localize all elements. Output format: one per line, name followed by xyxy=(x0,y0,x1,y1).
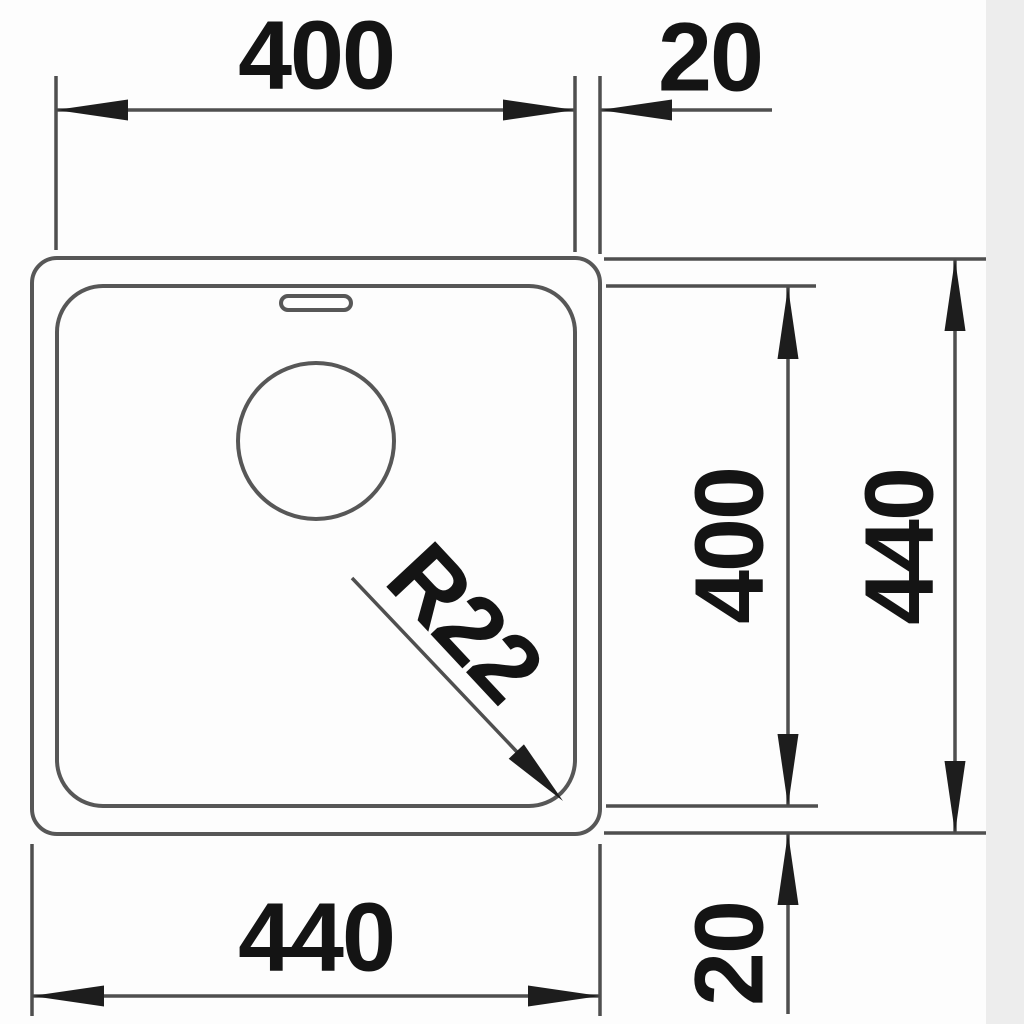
arrow-down-icon xyxy=(778,734,799,806)
dim-label-bottom-width: 440 xyxy=(238,889,394,986)
arrow-up-icon xyxy=(778,287,799,359)
arrow-up-icon xyxy=(778,833,799,905)
arrow-left-icon xyxy=(32,986,104,1007)
arrow-right-icon xyxy=(528,986,600,1007)
dim-label-bottom-rim: 20 xyxy=(681,902,778,1006)
technical-drawing-canvas: 400 20 400 440 440 20 R22 xyxy=(0,0,1024,1024)
overflow-slot xyxy=(281,296,351,310)
right-edge-strip xyxy=(986,0,1024,1024)
arrow-left-icon xyxy=(56,100,128,121)
dim-label-right-outer-height: 440 xyxy=(851,469,948,625)
dim-label-top-width: 400 xyxy=(238,7,394,104)
drain-circle xyxy=(238,363,394,519)
dim-label-top-rim: 20 xyxy=(658,9,762,106)
arrow-right-icon xyxy=(503,100,575,121)
arrow-down-icon xyxy=(945,761,966,833)
arrow-up-icon xyxy=(945,259,966,331)
dim-label-right-inner-height: 400 xyxy=(681,468,778,624)
radius-arrowhead-icon xyxy=(509,744,563,801)
